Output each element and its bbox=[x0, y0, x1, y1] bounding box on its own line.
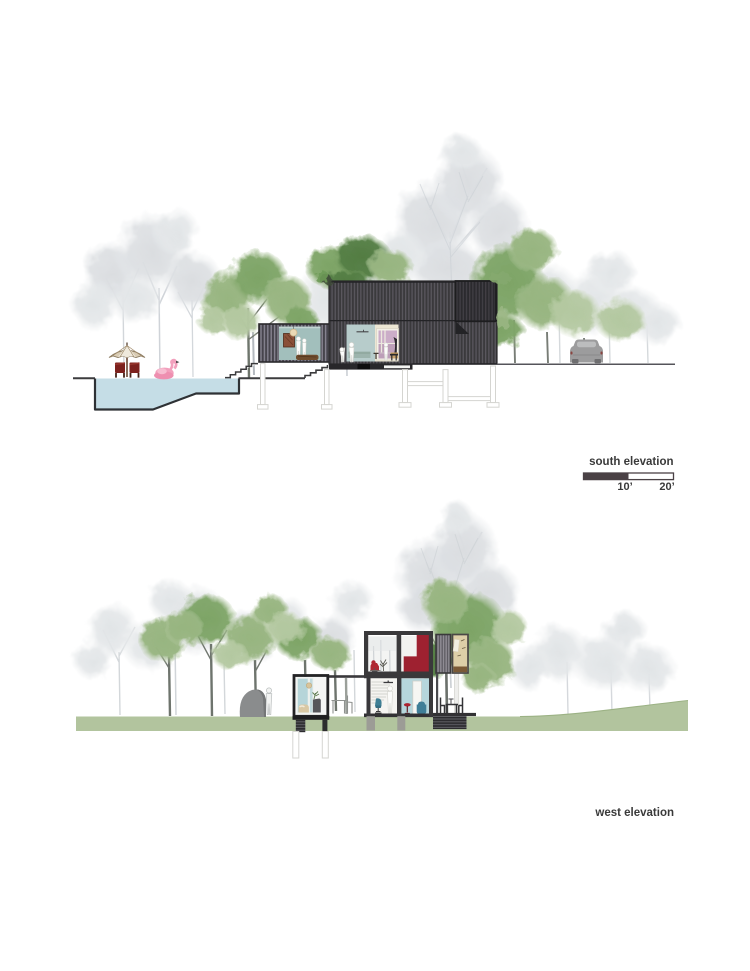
svg-text:10’: 10’ bbox=[617, 481, 632, 493]
svg-text:south elevation: south elevation bbox=[589, 456, 673, 468]
svg-text:20’: 20’ bbox=[659, 481, 674, 493]
svg-text:west elevation: west elevation bbox=[594, 807, 674, 819]
